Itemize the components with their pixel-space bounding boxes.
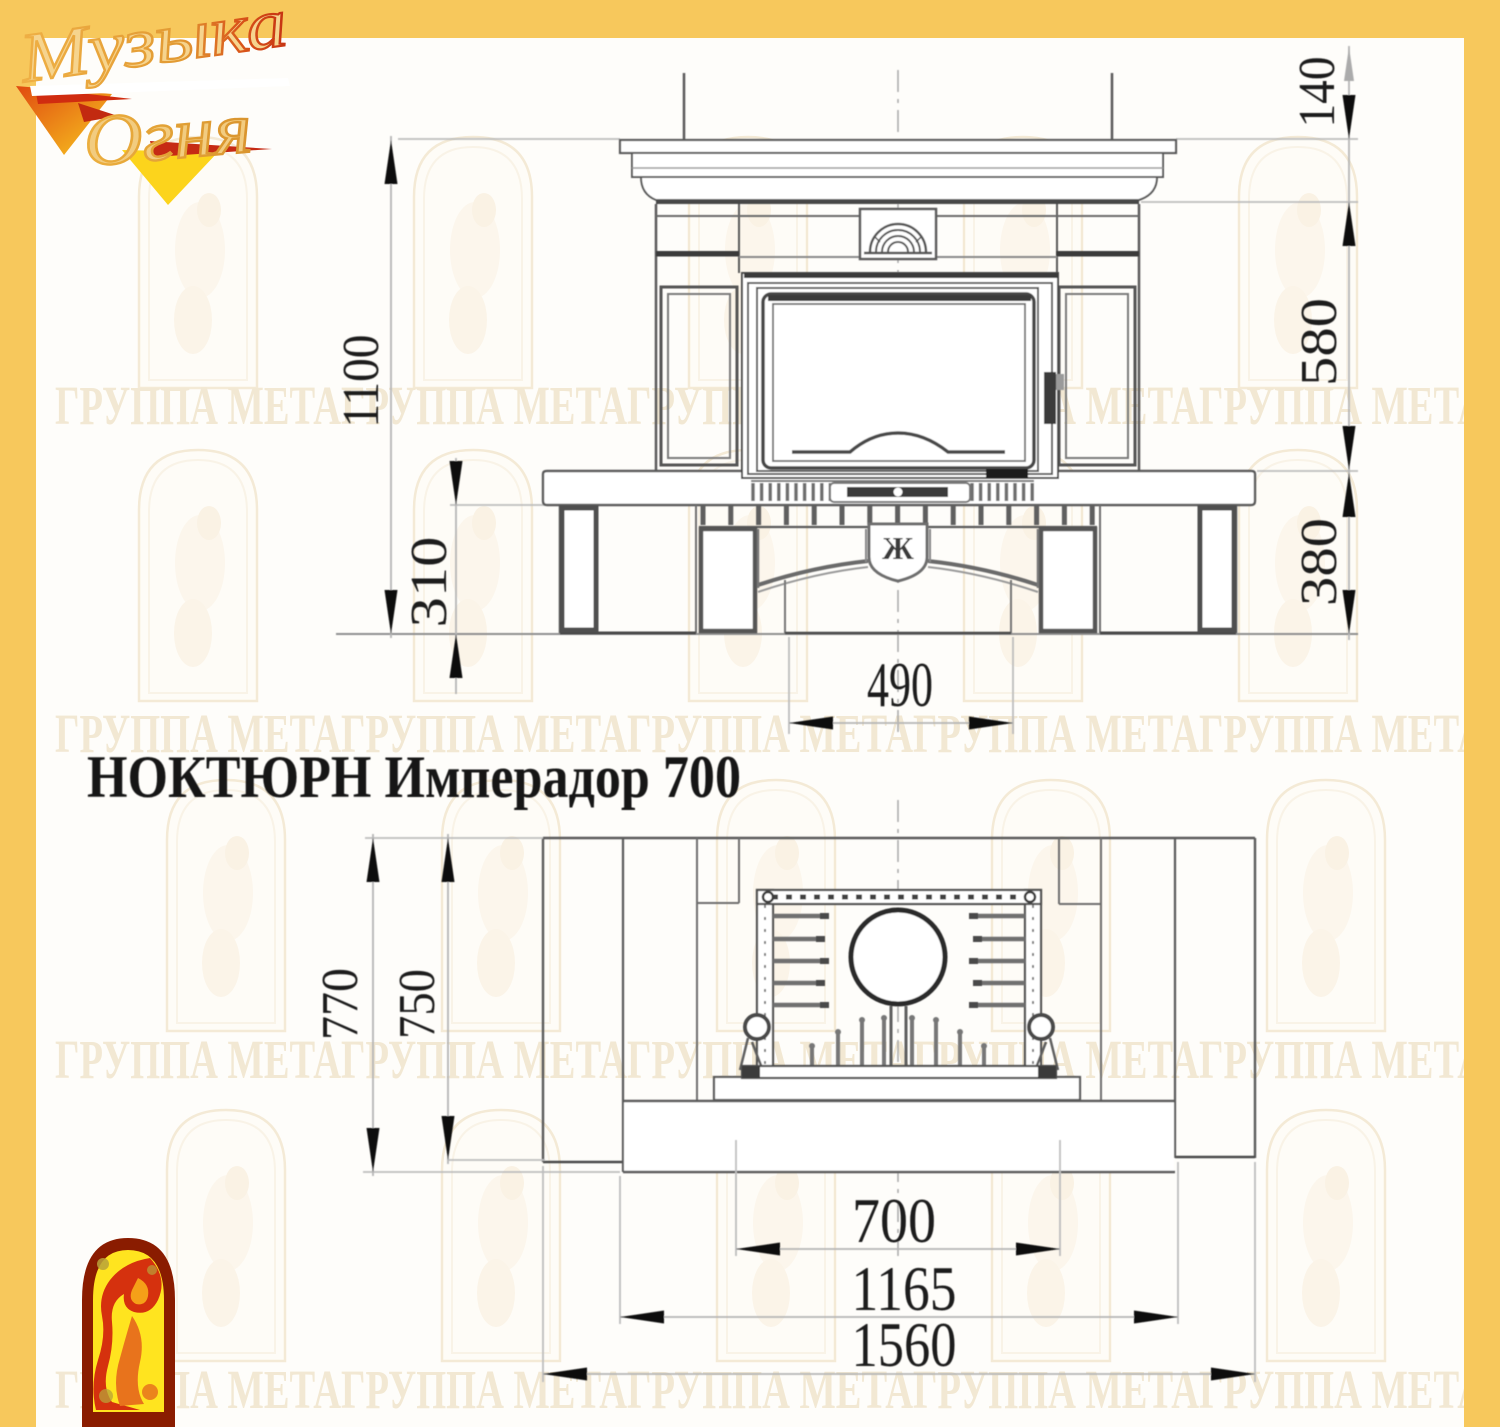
svg-text:Огня: Огня [80, 88, 254, 182]
svg-text:140: 140 [1289, 57, 1346, 128]
svg-text:580: 580 [1291, 298, 1348, 386]
svg-text:310: 310 [401, 537, 458, 628]
svg-text:1560: 1560 [852, 1309, 957, 1380]
svg-text:ГРУППА МЕТАГРУППА МЕТАГРУППА М: ГРУППА МЕТАГРУППА МЕТАГРУППА МЕТАГРУППА … [55, 1359, 1485, 1420]
svg-text:НОКТЮРН Имперадор 700: НОКТЮРН Имперадор 700 [87, 744, 741, 810]
svg-text:380: 380 [1291, 518, 1348, 606]
svg-text:750: 750 [389, 969, 446, 1039]
svg-text:770: 770 [312, 968, 369, 1040]
svg-text:Ж: Ж [882, 530, 914, 566]
svg-text:490: 490 [867, 649, 933, 720]
svg-text:700: 700 [852, 1185, 936, 1256]
svg-text:1100: 1100 [333, 335, 390, 428]
